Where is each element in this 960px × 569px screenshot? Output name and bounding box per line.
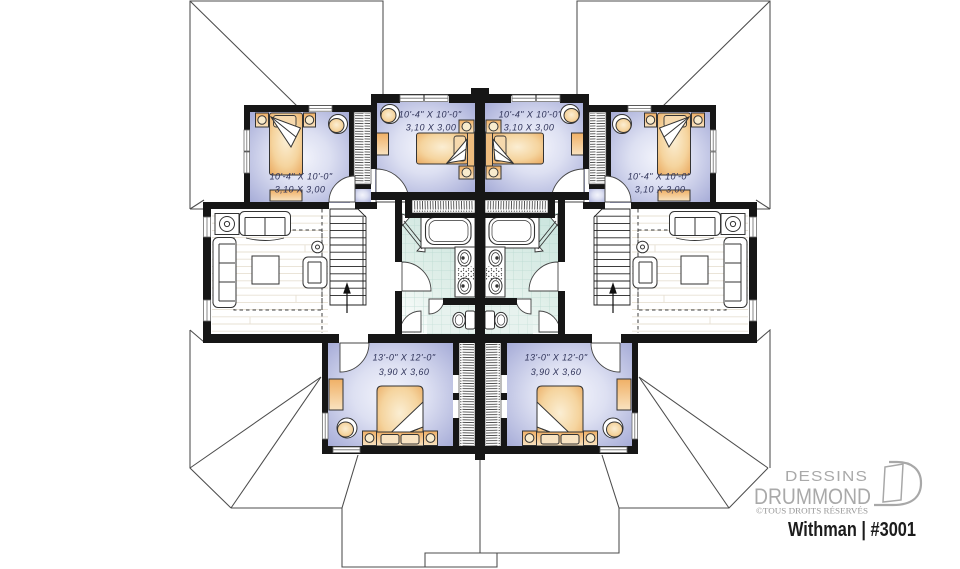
svg-text:3,90 X 3,60: 3,90 X 3,60 xyxy=(379,367,429,377)
svg-text:10'-4" X 10'-0": 10'-4" X 10'-0" xyxy=(270,172,333,182)
svg-text:13'-0" X 12'-0": 13'-0" X 12'-0" xyxy=(373,353,436,363)
svg-text:10'-4" X 10'-0": 10'-4" X 10'-0" xyxy=(399,110,462,120)
svg-text:3,90 X 3,60: 3,90 X 3,60 xyxy=(531,367,581,377)
svg-text:3,10 X 3,00: 3,10 X 3,00 xyxy=(635,185,685,195)
svg-text:3,10 X 3,00: 3,10 X 3,00 xyxy=(406,123,456,133)
svg-text:13'-0" X 12'-0": 13'-0" X 12'-0" xyxy=(525,353,588,363)
svg-text:3,10 X 3,00: 3,10 X 3,00 xyxy=(504,123,554,133)
svg-text:10'-4" X 10'-0": 10'-4" X 10'-0" xyxy=(499,110,562,120)
svg-text:Withman | #3001: Withman | #3001 xyxy=(788,519,916,541)
svg-text:10'-4" X 10'-0": 10'-4" X 10'-0" xyxy=(628,172,691,182)
svg-text:DRUMMOND: DRUMMOND xyxy=(754,484,871,509)
svg-text:3,10 X 3,00: 3,10 X 3,00 xyxy=(275,185,325,195)
svg-text:DESSINS: DESSINS xyxy=(785,468,868,485)
svg-text:©TOUS DROITS RÉSERVÉS: ©TOUS DROITS RÉSERVÉS xyxy=(756,506,868,516)
